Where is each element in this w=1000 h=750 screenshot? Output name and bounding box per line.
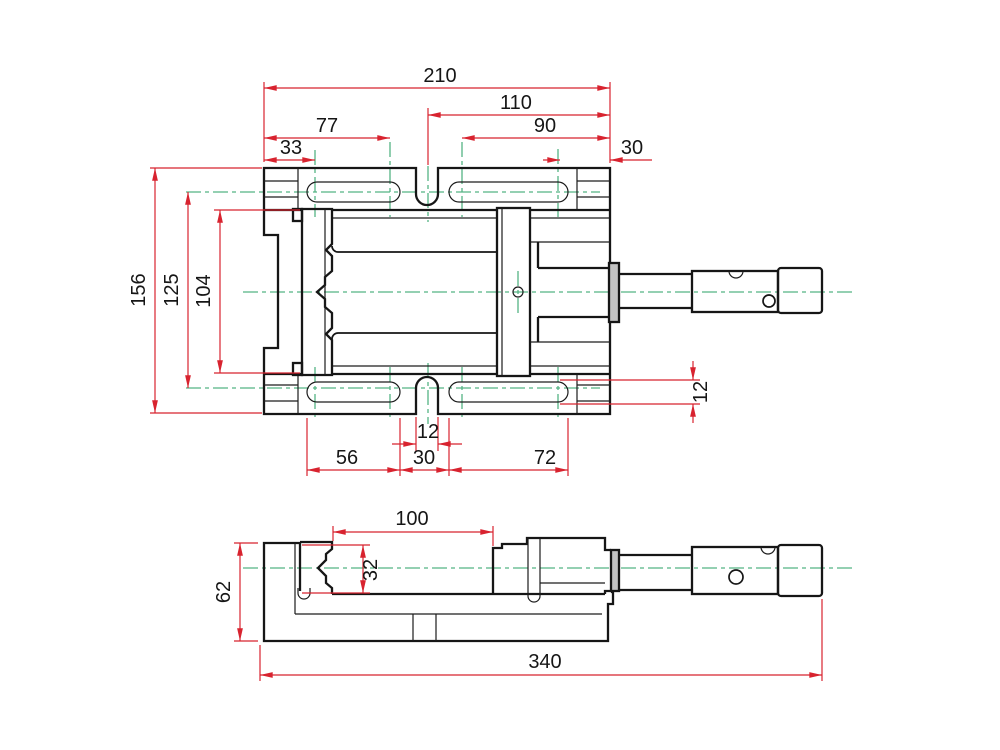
dim-77: 77 <box>264 115 390 138</box>
screw-end-cap-top-view <box>778 268 822 313</box>
front-jaw-plate-slot <box>528 538 540 602</box>
screw-collar-front-view <box>611 550 619 591</box>
dim-label-30-gap: 30 <box>413 447 435 469</box>
dim-125: 125 <box>161 192 188 388</box>
cross-hole-top-view <box>763 295 775 307</box>
dim-110: 110 <box>428 92 610 165</box>
dim-210: 210 <box>264 65 610 163</box>
front-fixed-jaw-housing <box>493 538 611 594</box>
front-base-inner-lines <box>295 543 602 641</box>
screw-shaft-top-view <box>619 274 692 308</box>
dim-label-340: 340 <box>528 651 561 673</box>
dim-12-notch: 12 <box>392 417 462 451</box>
dim-label-110: 110 <box>500 92 532 114</box>
dim-100: 100 <box>333 508 493 546</box>
dim-label-104: 104 <box>193 274 215 307</box>
screw-shaft-front-view <box>619 555 692 590</box>
mounting-slot-bottom-left <box>307 382 400 402</box>
dim-label-156: 156 <box>128 273 150 306</box>
mounting-slot-bottom-right <box>449 382 568 402</box>
dim-90: 90 <box>462 115 610 138</box>
dim-label-77: 77 <box>316 115 338 137</box>
top-view <box>264 168 822 414</box>
dim-label-32: 32 <box>360 559 382 581</box>
front-view <box>264 538 822 641</box>
dim-label-210: 210 <box>423 65 456 87</box>
dim-label-72: 72 <box>534 447 556 469</box>
dim-30-edge: 30 <box>543 137 652 160</box>
dim-label-12-notch: 12 <box>417 421 439 443</box>
dimensions-top-view: 210 110 77 90 33 30 156 <box>128 65 712 476</box>
dim-label-56: 56 <box>336 447 358 469</box>
screw-end-cap-front-view <box>778 545 822 596</box>
opening-top-edge <box>332 246 497 252</box>
dim-label-90: 90 <box>534 115 556 137</box>
dim-label-62: 62 <box>213 581 235 603</box>
dim-62: 62 <box>213 543 258 641</box>
dim-32: 32 <box>302 545 382 593</box>
dim-label-30-edge: 30 <box>621 137 643 159</box>
front-base-outline <box>264 543 613 641</box>
vise-drawing: 210 110 77 90 33 30 156 <box>0 0 1000 750</box>
drawing-canvas: 210 110 77 90 33 30 156 <box>0 0 1000 750</box>
dim-33: 33 <box>264 137 315 160</box>
cross-hole-front-view <box>729 570 743 584</box>
dim-label-100: 100 <box>395 508 428 530</box>
dim-label-33: 33 <box>280 137 302 159</box>
dim-label-12-slot: 12 <box>690 381 712 403</box>
dim-label-125: 125 <box>161 273 183 306</box>
centerlines <box>186 142 852 568</box>
screw-collar-top-view <box>609 263 619 322</box>
opening-bottom-edge <box>332 333 497 339</box>
